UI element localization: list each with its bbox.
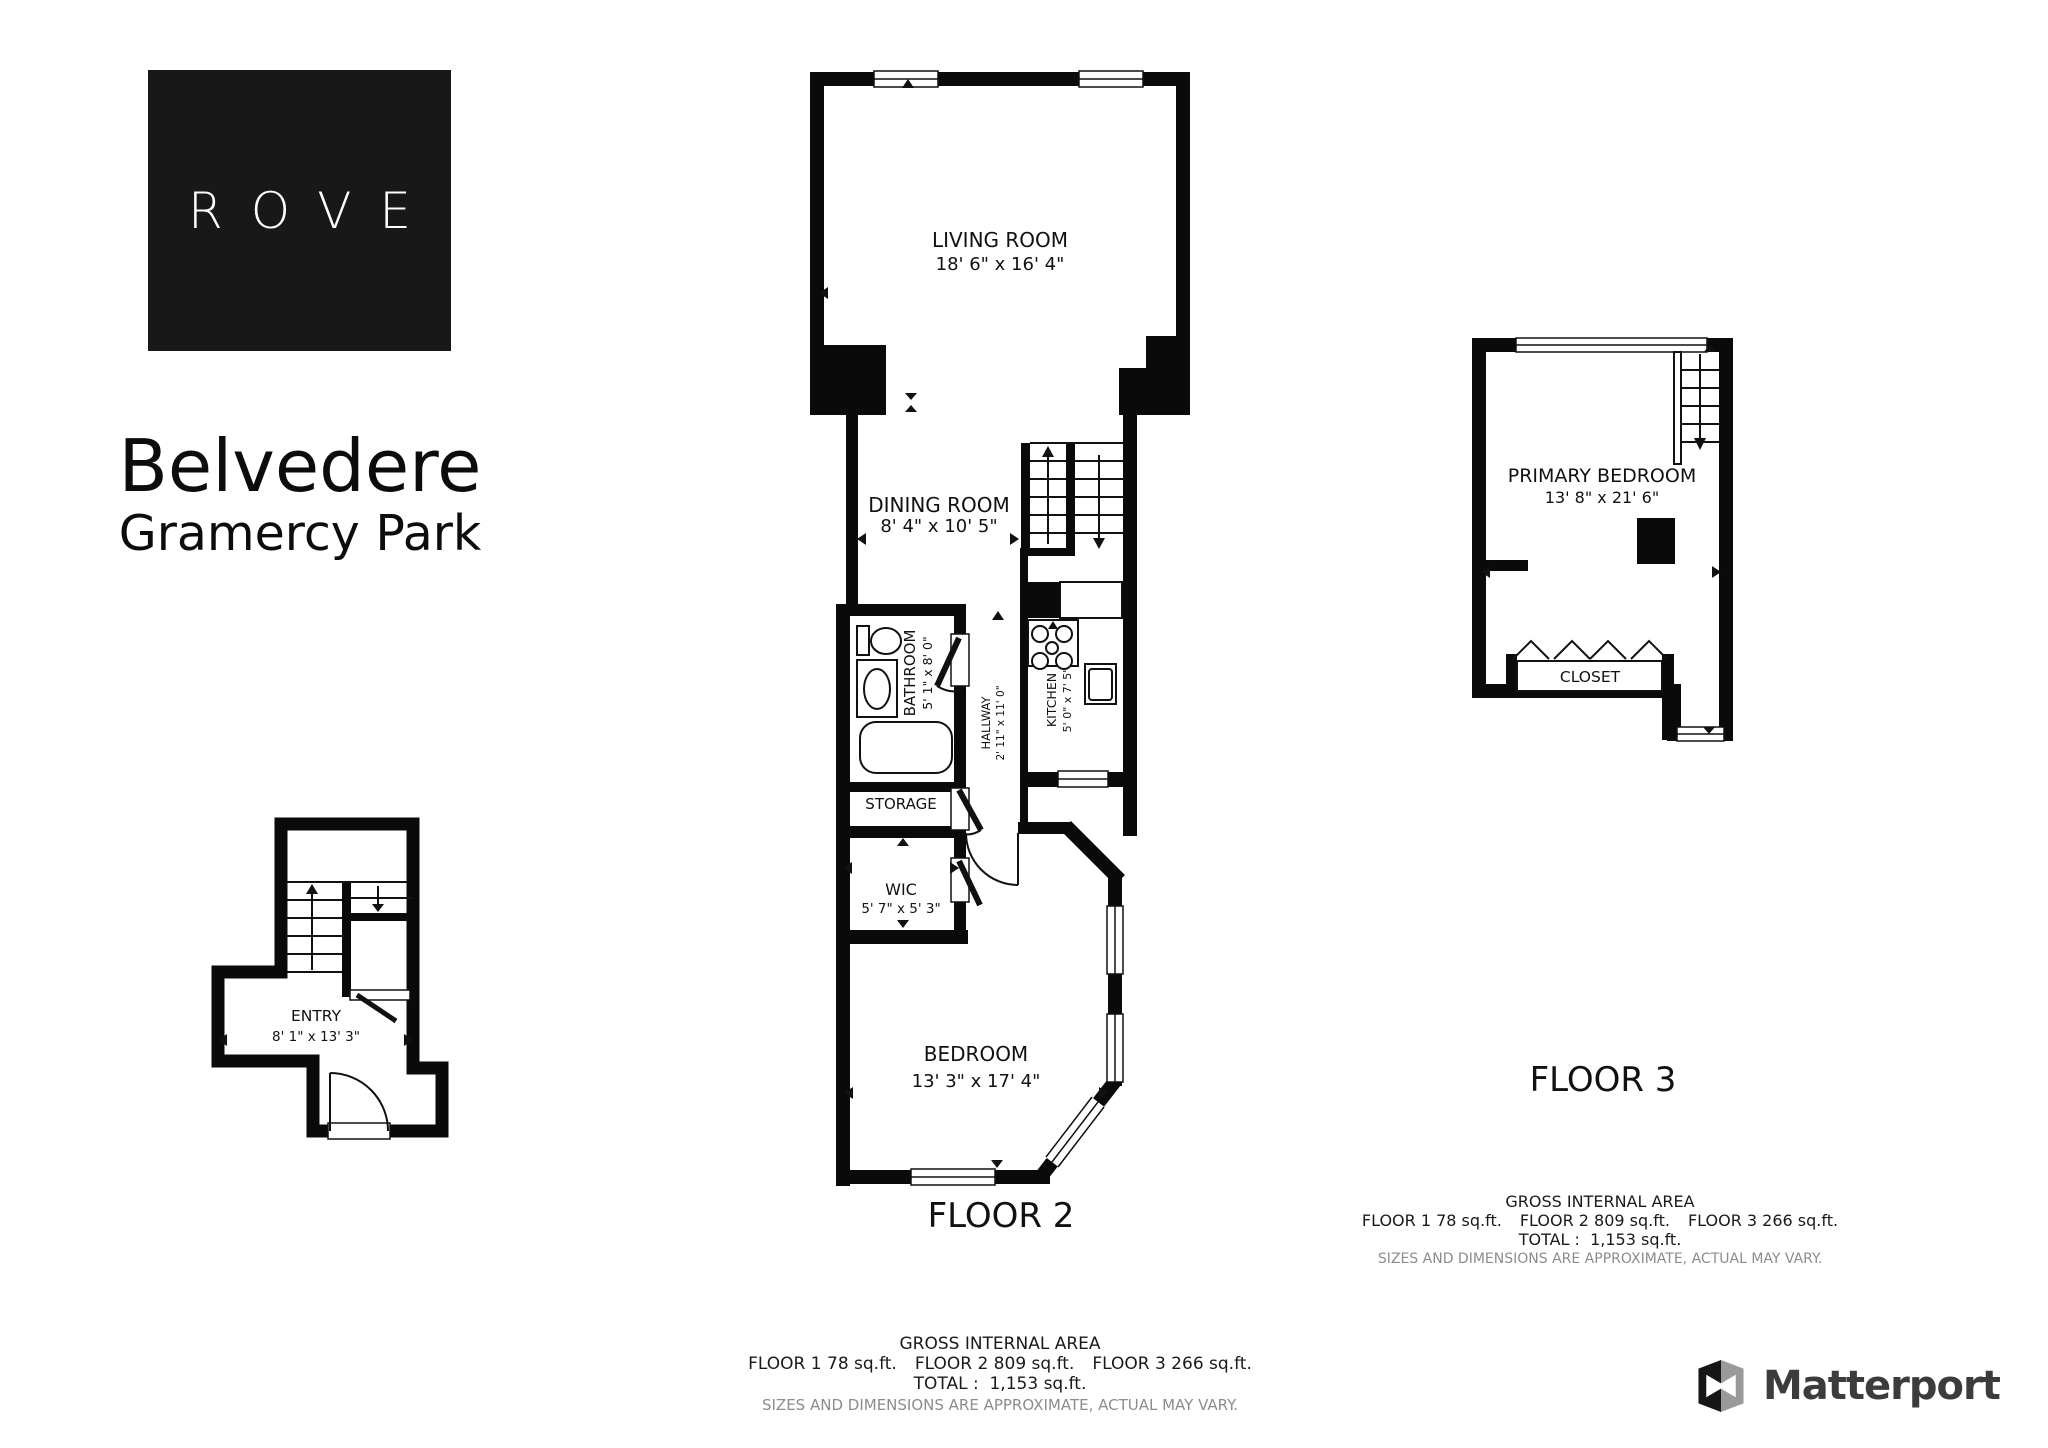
area-floor3: FLOOR 3 266 sq.ft. bbox=[1688, 1211, 1838, 1230]
hallway-label: HALLWAY bbox=[979, 696, 993, 750]
floor3-caption: FLOOR 3 bbox=[1530, 1060, 1677, 1100]
area-total-line: TOTAL : 1,153 sq.ft. bbox=[1350, 1230, 1850, 1249]
primary-bedroom-dims: 13' 8" x 21' 6" bbox=[1545, 488, 1659, 507]
wic-dims: 5' 7" x 5' 3" bbox=[861, 901, 940, 917]
area-floors-line: FLOOR 1 78 sq.ft.FLOOR 2 809 sq.ft.FLOOR… bbox=[700, 1354, 1300, 1374]
primary-bedroom-label: PRIMARY BEDROOM bbox=[1508, 465, 1696, 487]
wic-label: WIC bbox=[885, 880, 917, 899]
matterport-wordmark: Matterport bbox=[1763, 1363, 2000, 1409]
living-room-label: LIVING ROOM bbox=[932, 228, 1068, 252]
area-floor2: FLOOR 2 809 sq.ft. bbox=[1520, 1211, 1670, 1230]
closet-folding-doors bbox=[1513, 641, 1667, 659]
area-disclaimer: SIZES AND DIMENSIONS ARE APPROXIMATE, AC… bbox=[1350, 1249, 1850, 1269]
area-total-line: TOTAL : 1,153 sq.ft. bbox=[700, 1374, 1300, 1394]
area-floor3: FLOOR 3 266 sq.ft. bbox=[1092, 1354, 1252, 1374]
living-room-dims: 18' 6" x 16' 4" bbox=[936, 254, 1065, 275]
floor1-stair-up-arrow bbox=[306, 884, 318, 894]
dining-room-label: DINING ROOM bbox=[868, 493, 1010, 517]
floor2-bay-window bbox=[1046, 1097, 1104, 1167]
area-floors-line: FLOOR 1 78 sq.ft.FLOOR 2 809 sq.ft.FLOOR… bbox=[1350, 1211, 1850, 1230]
bathroom-label: BATHROOM bbox=[901, 630, 919, 717]
stair-down-arrow bbox=[1093, 538, 1105, 549]
floor3-dimension-arrows bbox=[1481, 566, 1721, 734]
entry-dims: 8' 1" x 13' 3" bbox=[272, 1029, 360, 1045]
floor3-inner-walls bbox=[1472, 518, 1675, 740]
kitchen-dims: 5' 0" x 7' 5" bbox=[1061, 668, 1074, 733]
bedroom-dims: 13' 3" x 17' 4" bbox=[912, 1071, 1041, 1092]
floor2-doors bbox=[937, 638, 1018, 905]
stair-up-arrow bbox=[1042, 446, 1054, 457]
floor3-area-summary: GROSS INTERNAL AREA FLOOR 1 78 sq.ft.FLO… bbox=[1350, 1192, 1850, 1269]
floor2-caption: FLOOR 2 bbox=[928, 1196, 1075, 1236]
area-floor1: FLOOR 1 78 sq.ft. bbox=[1362, 1211, 1502, 1230]
floor3-plan: PRIMARY BEDROOM 13' 8" x 21' 6" CLOSET F… bbox=[1472, 338, 1726, 1100]
area-floor1: FLOOR 1 78 sq.ft. bbox=[748, 1354, 897, 1374]
floor2-area-summary: GROSS INTERNAL AREA FLOOR 1 78 sq.ft.FLO… bbox=[700, 1334, 1300, 1416]
floor2-plan: LIVING ROOM 18' 6" x 16' 4" DINING ROOM … bbox=[810, 71, 1190, 1236]
area-heading: GROSS INTERNAL AREA bbox=[700, 1334, 1300, 1354]
floor3-stair-down-arrow bbox=[1694, 438, 1706, 450]
closet-label: CLOSET bbox=[1560, 668, 1621, 686]
bathroom-dims: 5' 1" x 8' 0" bbox=[920, 636, 935, 709]
floor1-plan: ENTRY 8' 1" x 13' 3" bbox=[218, 824, 442, 1139]
floor1-stair-down-arrow bbox=[372, 904, 384, 912]
area-floor2: FLOOR 2 809 sq.ft. bbox=[915, 1354, 1075, 1374]
matterport-icon bbox=[1695, 1358, 1747, 1414]
area-disclaimer: SIZES AND DIMENSIONS ARE APPROXIMATE, AC… bbox=[700, 1394, 1300, 1416]
dining-room-dims: 8' 4" x 10' 5" bbox=[880, 516, 997, 537]
floor3-staircase bbox=[1674, 352, 1719, 464]
entry-label: ENTRY bbox=[291, 1007, 342, 1025]
bedroom-label: BEDROOM bbox=[924, 1042, 1028, 1066]
storage-label: STORAGE bbox=[865, 795, 936, 813]
floorplan-page: ROVE Belvedere Gramercy Park bbox=[0, 0, 2048, 1448]
floor2-staircase bbox=[1030, 443, 1123, 544]
hallway-dims: 2' 11" x 11' 0" bbox=[995, 685, 1007, 760]
area-heading: GROSS INTERNAL AREA bbox=[1350, 1192, 1850, 1211]
kitchen-label: KITCHEN bbox=[1044, 673, 1059, 727]
matterport-logo: Matterport bbox=[1695, 1358, 2000, 1414]
